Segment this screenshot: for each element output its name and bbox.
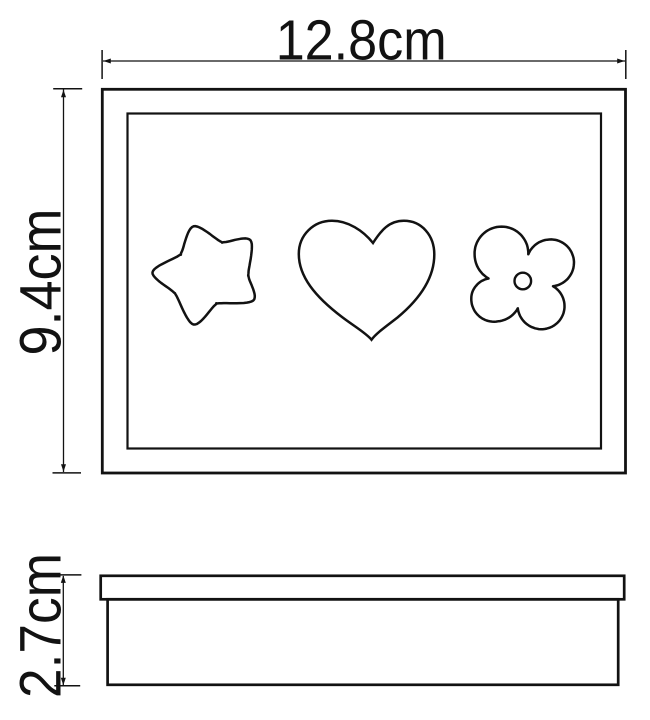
svg-text:12.8cm: 12.8cm <box>276 10 447 73</box>
svg-text:9.4cm: 9.4cm <box>9 209 74 356</box>
svg-text:2.7cm: 2.7cm <box>9 553 74 698</box>
